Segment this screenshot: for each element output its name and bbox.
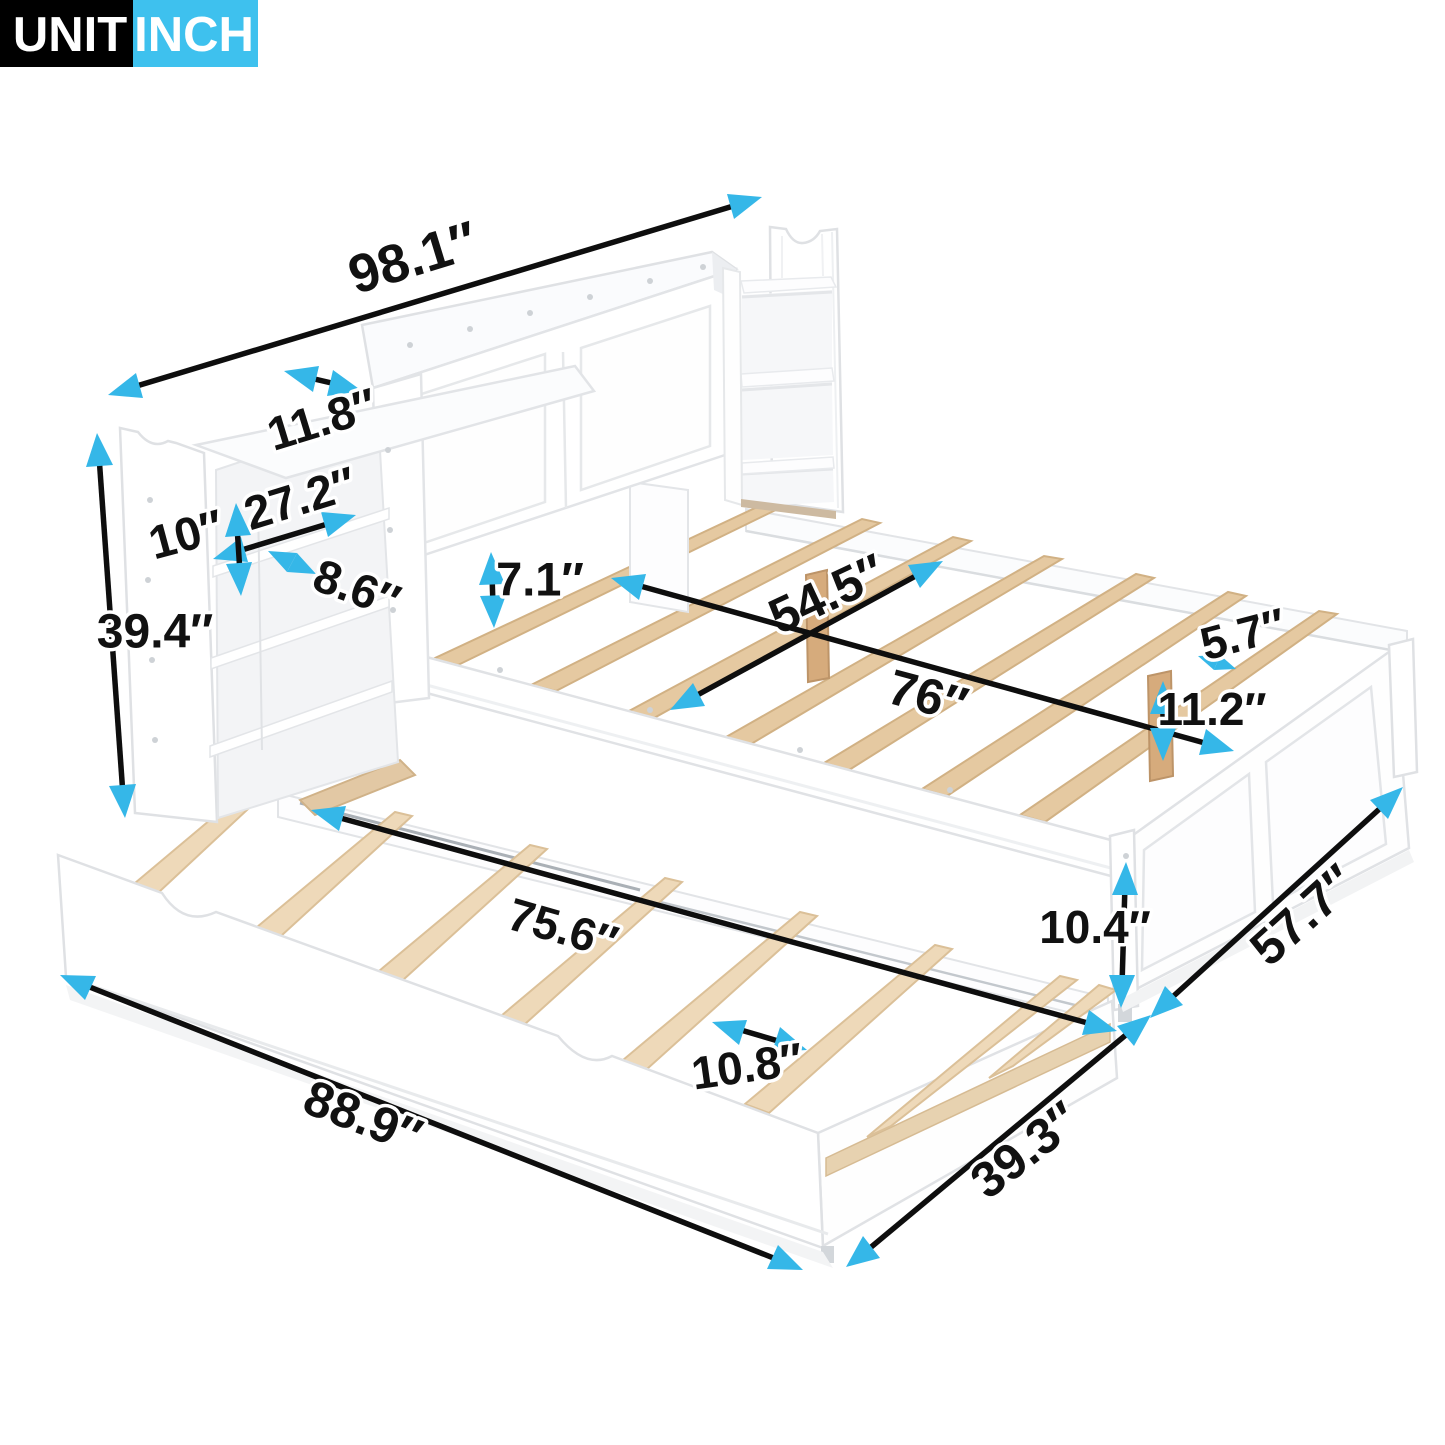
svg-text:7.1″: 7.1″ [496, 553, 584, 606]
svg-text:39.4″: 39.4″ [97, 606, 213, 659]
svg-text:UNIT: UNIT [13, 8, 127, 62]
svg-text:11.2″: 11.2″ [1157, 683, 1266, 735]
svg-text:10.4″: 10.4″ [1039, 901, 1151, 953]
svg-text:INCH: INCH [134, 8, 254, 62]
